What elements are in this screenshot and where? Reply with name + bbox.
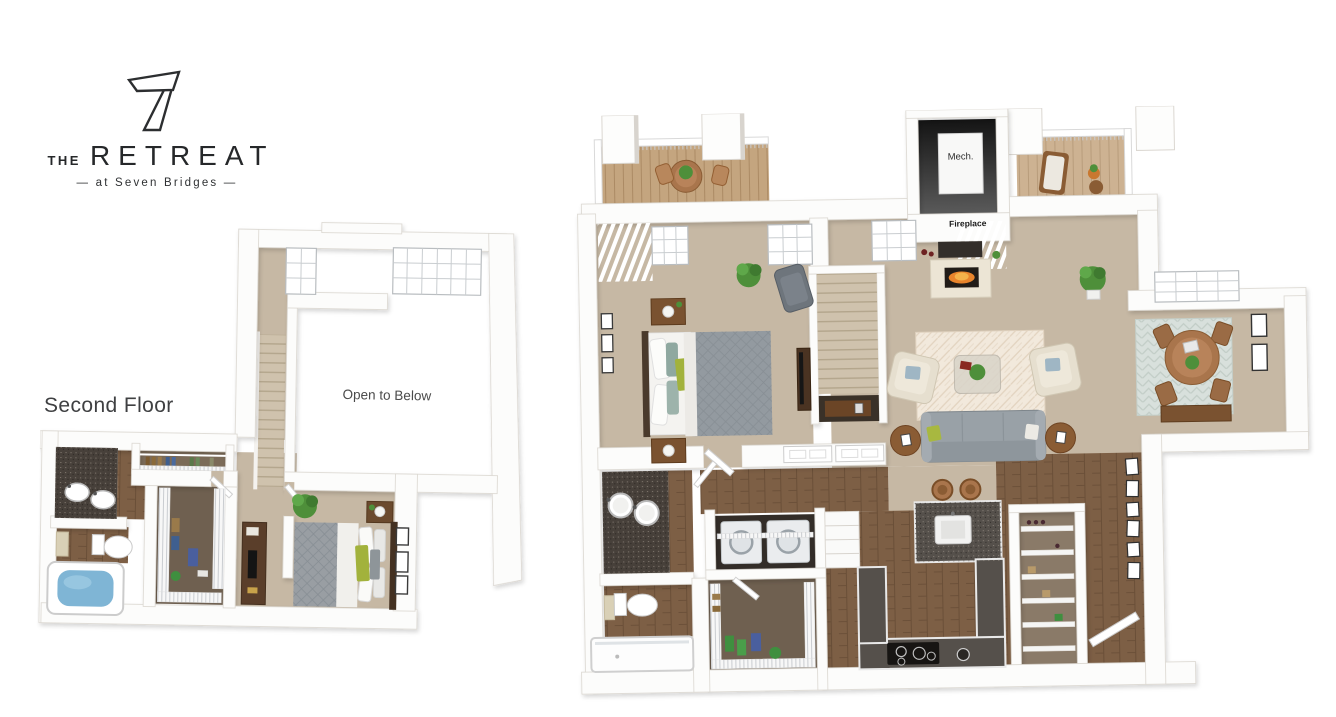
lamp: [663, 306, 674, 317]
second-floor-drawing: [36, 216, 544, 675]
second-floor-windows: [286, 246, 482, 297]
column: [1008, 108, 1043, 155]
teal-pillow: [666, 380, 679, 414]
column: [602, 115, 639, 164]
window: [652, 226, 689, 265]
brand-prefix: THE: [47, 153, 81, 168]
towel-bench: [56, 532, 68, 556]
lamp: [375, 506, 385, 516]
pillow: [1024, 424, 1039, 440]
towel-bench: [604, 596, 614, 620]
wall-frame: [396, 528, 408, 545]
brand-tagline: — at Seven Bridges —: [38, 177, 276, 189]
toilet-tank: [92, 535, 104, 555]
first-floor-drawing: [550, 103, 1320, 716]
green-pillow: [355, 545, 370, 582]
tv-console: [797, 348, 811, 410]
brand-name: RETREAT: [90, 140, 275, 172]
column: [1136, 106, 1175, 151]
mech-unit: [938, 133, 983, 194]
counter: [858, 567, 887, 643]
second-floor-plan: Open to Below: [36, 216, 544, 675]
armchair: [1028, 342, 1082, 398]
bed-fold: [684, 332, 698, 436]
clothes: [751, 633, 761, 651]
toilet: [104, 536, 132, 558]
wall-frame: [395, 576, 407, 594]
first-floor-plan: Mech. Fireplace: [550, 103, 1320, 716]
clothes: [171, 536, 179, 550]
tv: [938, 241, 982, 258]
mech-label: Mech.: [936, 151, 984, 163]
wall-frame: [602, 358, 613, 373]
fireplace-label: Fireplace: [934, 218, 1002, 229]
sofa: [921, 410, 1046, 462]
balcony-left: [594, 113, 770, 204]
floor-plan-sheet: { "logo": { "brand_prefix": "THE", "bran…: [0, 0, 1336, 717]
toilet: [627, 594, 657, 617]
stair-nook-desk: [825, 400, 871, 417]
wall-frame: [602, 335, 613, 352]
wall-frame: [601, 314, 612, 329]
sideboard: [1161, 405, 1231, 422]
wall-frame: [396, 552, 408, 572]
column: [702, 113, 745, 160]
stairs-to-below: [253, 331, 286, 489]
wall-frame: [1252, 344, 1267, 370]
logo: THE RETREAT — at Seven Bridges —: [38, 68, 276, 189]
wall-frame: [1251, 314, 1266, 336]
window: [872, 220, 917, 261]
clothes: [737, 639, 746, 655]
clothes: [171, 518, 179, 532]
clothes: [188, 548, 198, 566]
desk: [241, 522, 266, 604]
blind-window: [598, 223, 653, 282]
mech-closet: [918, 119, 998, 214]
bed-sheet: [336, 523, 358, 607]
toilet-tank: [614, 593, 626, 615]
clothes: [725, 636, 734, 652]
lamp: [663, 445, 674, 456]
seven-glyph-icon: [38, 68, 276, 138]
bathtub-water: [57, 570, 114, 607]
window: [768, 224, 813, 265]
open-to-below-label: Open to Below: [335, 387, 439, 404]
seven-glyph-bar: [129, 72, 179, 91]
balcony-right: [1008, 106, 1176, 197]
gray-pillow: [370, 549, 381, 579]
brand-row: THE RETREAT: [38, 140, 276, 172]
stairs-up: [817, 273, 880, 422]
monitor: [248, 550, 257, 578]
book: [960, 361, 972, 371]
armchair: [886, 350, 941, 405]
